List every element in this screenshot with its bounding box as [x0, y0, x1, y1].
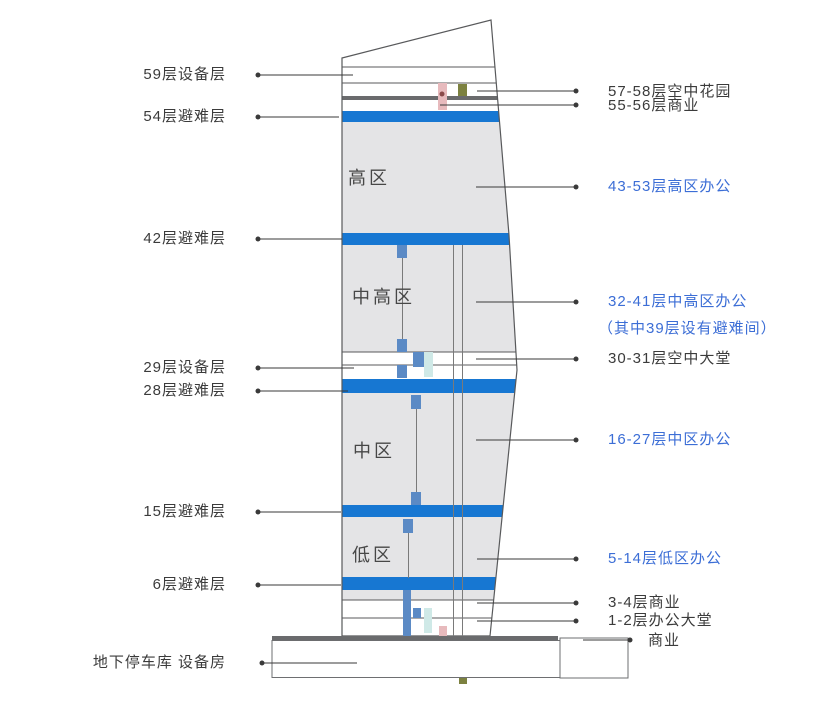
refuge-band-15f — [330, 505, 530, 517]
zone-label-mid: 中区 — [353, 440, 395, 462]
label-43-53-high-office: 43-53层高区办公 — [608, 178, 731, 196]
zone-label-mid-high: 中高区 — [352, 286, 415, 308]
label-15f-refuge: 15层避难层 — [16, 503, 226, 521]
label-30-31-sky-lobby: 30-31层空中大堂 — [608, 350, 731, 368]
label-42f-refuge: 42层避难层 — [16, 230, 226, 248]
refuge-band-28f — [330, 379, 530, 393]
refuge-band-6f — [330, 577, 530, 590]
label-5-14-low-office: 5-14层低区办公 — [608, 550, 722, 568]
podium-basement — [272, 636, 628, 678]
refuge-band-42f — [330, 233, 530, 245]
shaft-pink-top — [438, 83, 447, 110]
label-32-41-midhigh-office: 32-41层中高区办公 — [608, 293, 747, 311]
equipment-floor-bar — [330, 96, 530, 100]
shaft-cyan-upper — [424, 352, 433, 377]
label-basement-parking: 地下停车库 设备房 — [16, 654, 226, 672]
label-6f-refuge: 6层避难层 — [16, 576, 226, 594]
zone-label-high: 高区 — [348, 167, 390, 189]
zone-label-low: 低区 — [352, 544, 394, 566]
label-55-56-retail: 55-56层商业 — [608, 97, 699, 115]
label-28f-refuge: 28层避难层 — [16, 382, 226, 400]
label-54f-refuge: 54层避难层 — [16, 108, 226, 126]
label-59f-equipment: 59层设备层 — [16, 66, 226, 84]
building-section-page: 59层设备层 54层避难层 42层避难层 29层设备层 28层避难层 15层避难… — [0, 0, 832, 712]
label-29f-equipment: 29层设备层 — [16, 359, 226, 377]
basement-box — [272, 641, 562, 678]
leader-dots-left — [256, 73, 265, 666]
label-3-4-retail: 3-4层商业 — [608, 594, 681, 612]
label-39f-refuge-note: （其中39层设有避难间） — [598, 320, 777, 338]
ground-slab-bar — [272, 636, 558, 641]
label-16-27-mid-office: 16-27层中区办公 — [608, 431, 731, 449]
label-1-2-office-lobby: 1-2层办公大堂 — [608, 612, 713, 630]
shaft-cyan-lower — [424, 608, 432, 633]
label-podium-retail: 商业 — [648, 632, 680, 650]
retail-annex-box — [560, 638, 628, 678]
shaft-olive-top — [458, 84, 467, 96]
